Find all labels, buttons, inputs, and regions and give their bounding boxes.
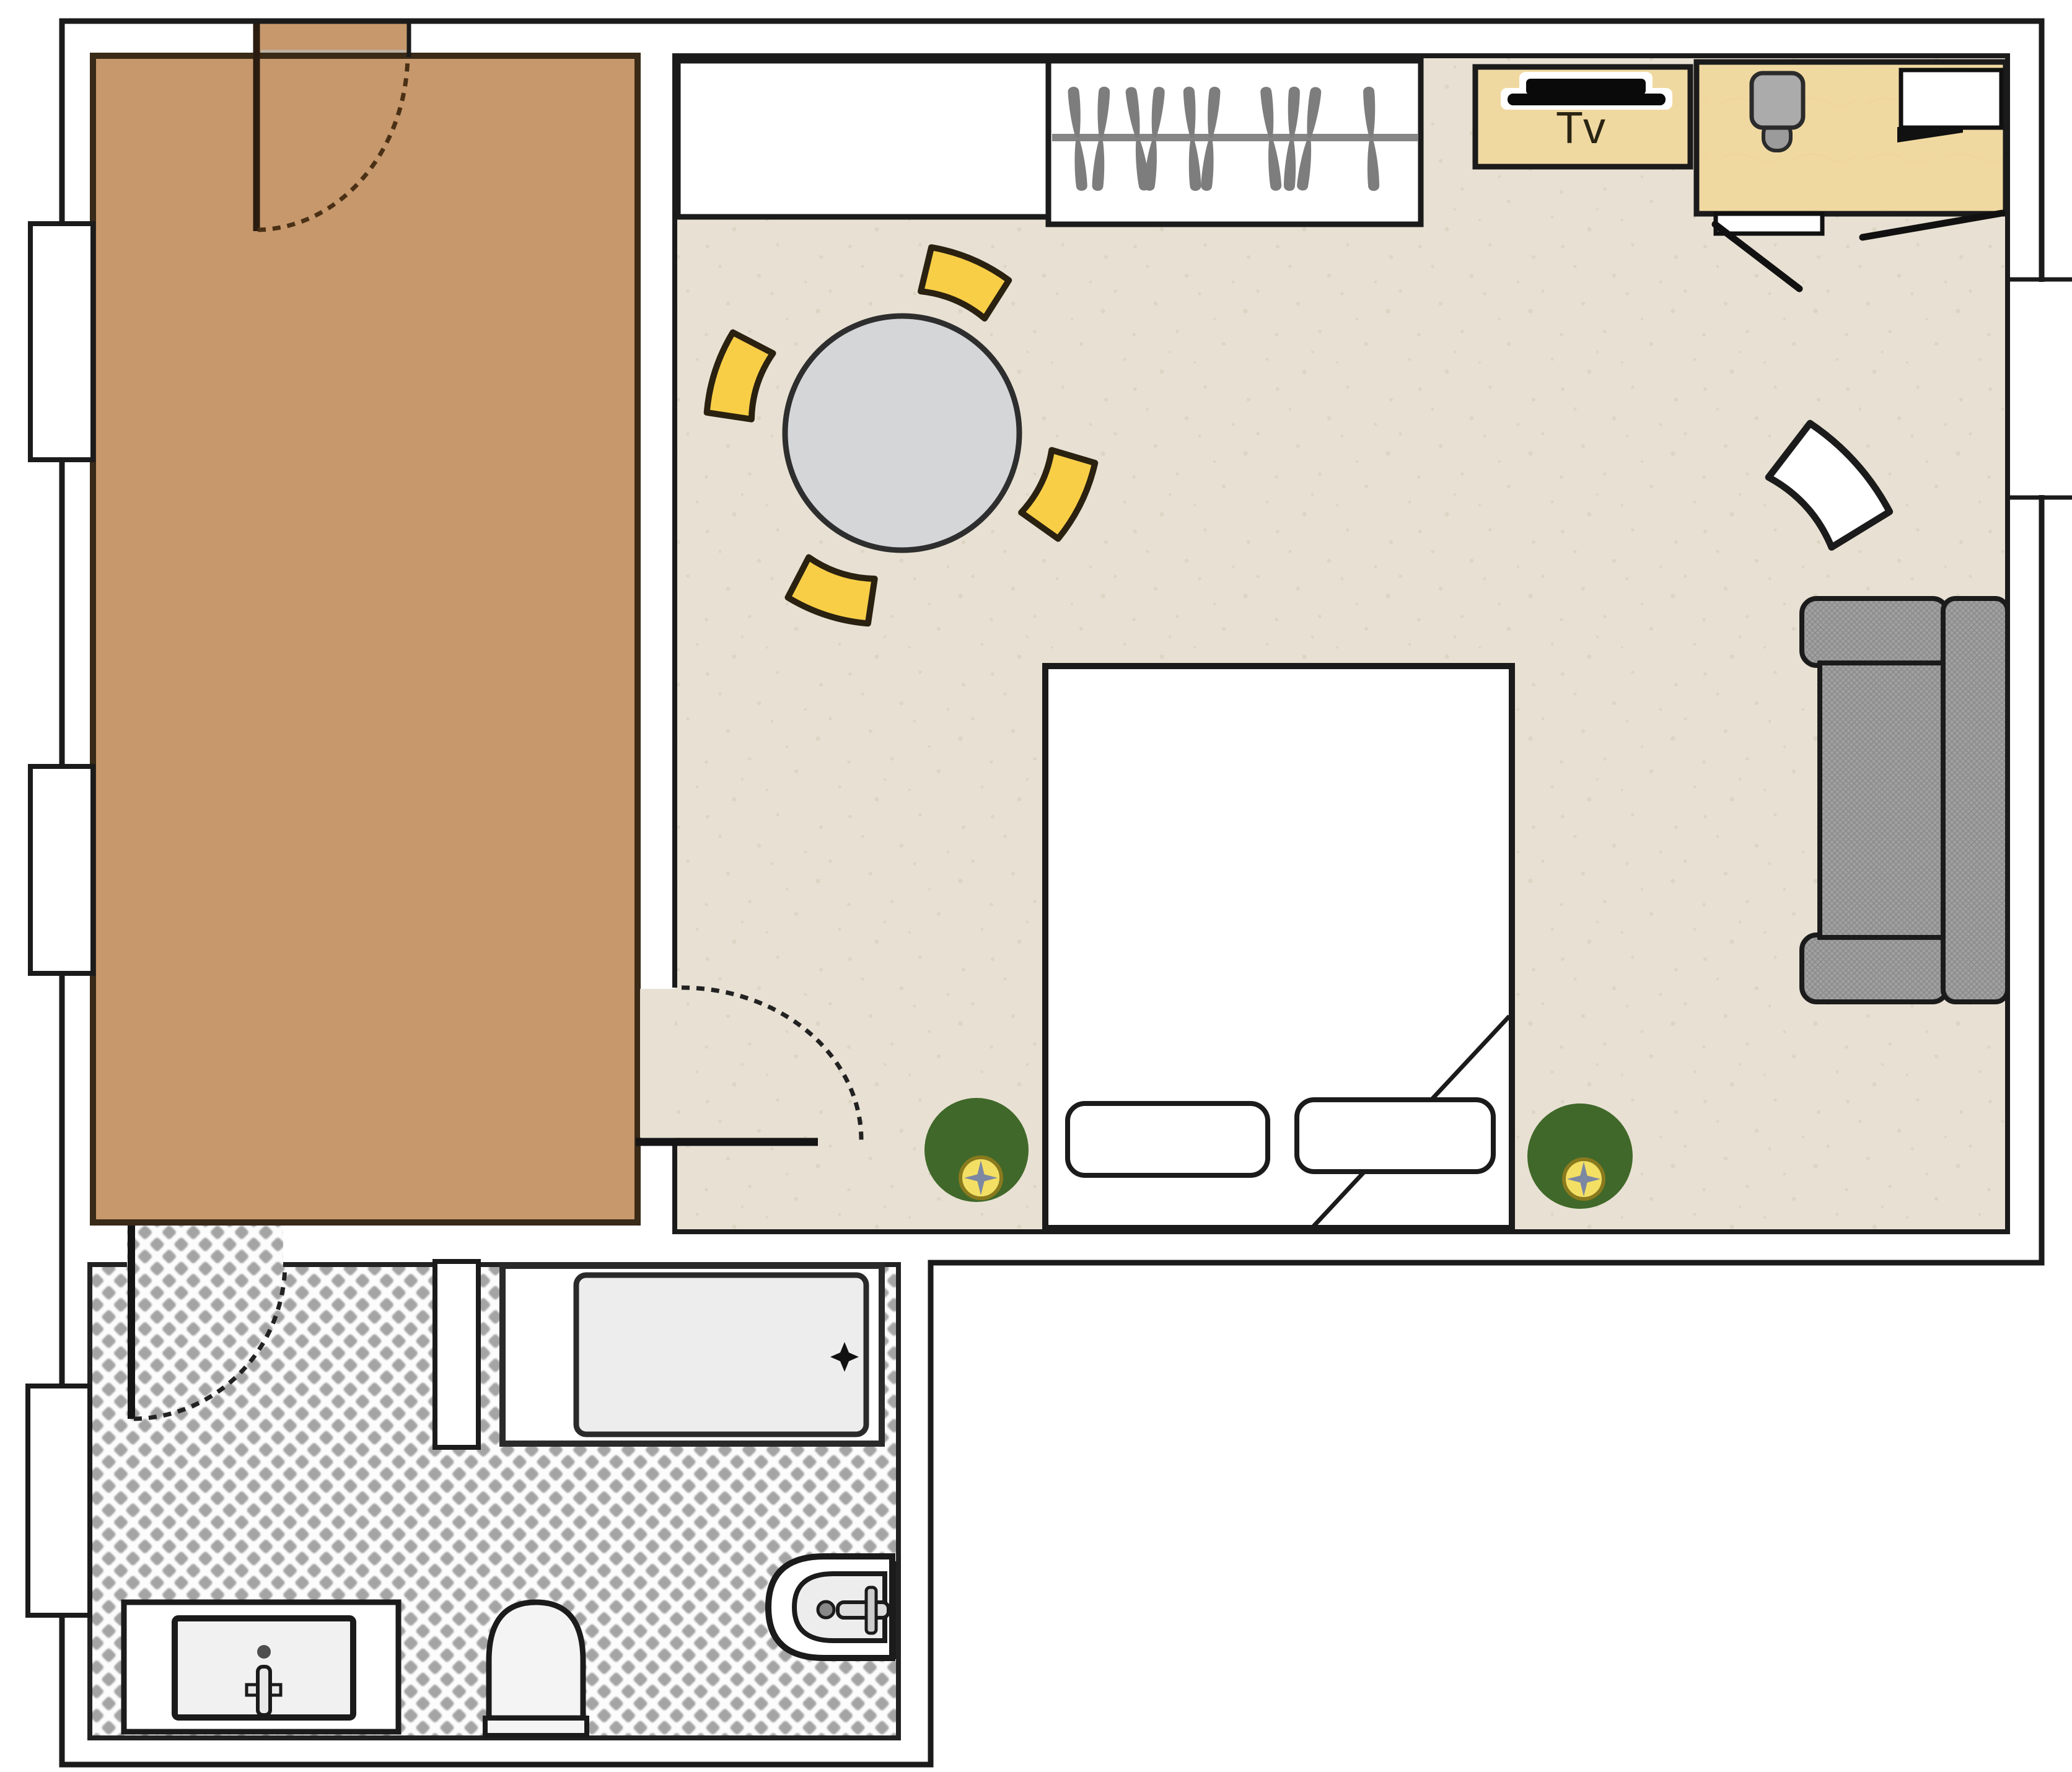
svg-text:Tv: Tv	[1556, 103, 1605, 153]
